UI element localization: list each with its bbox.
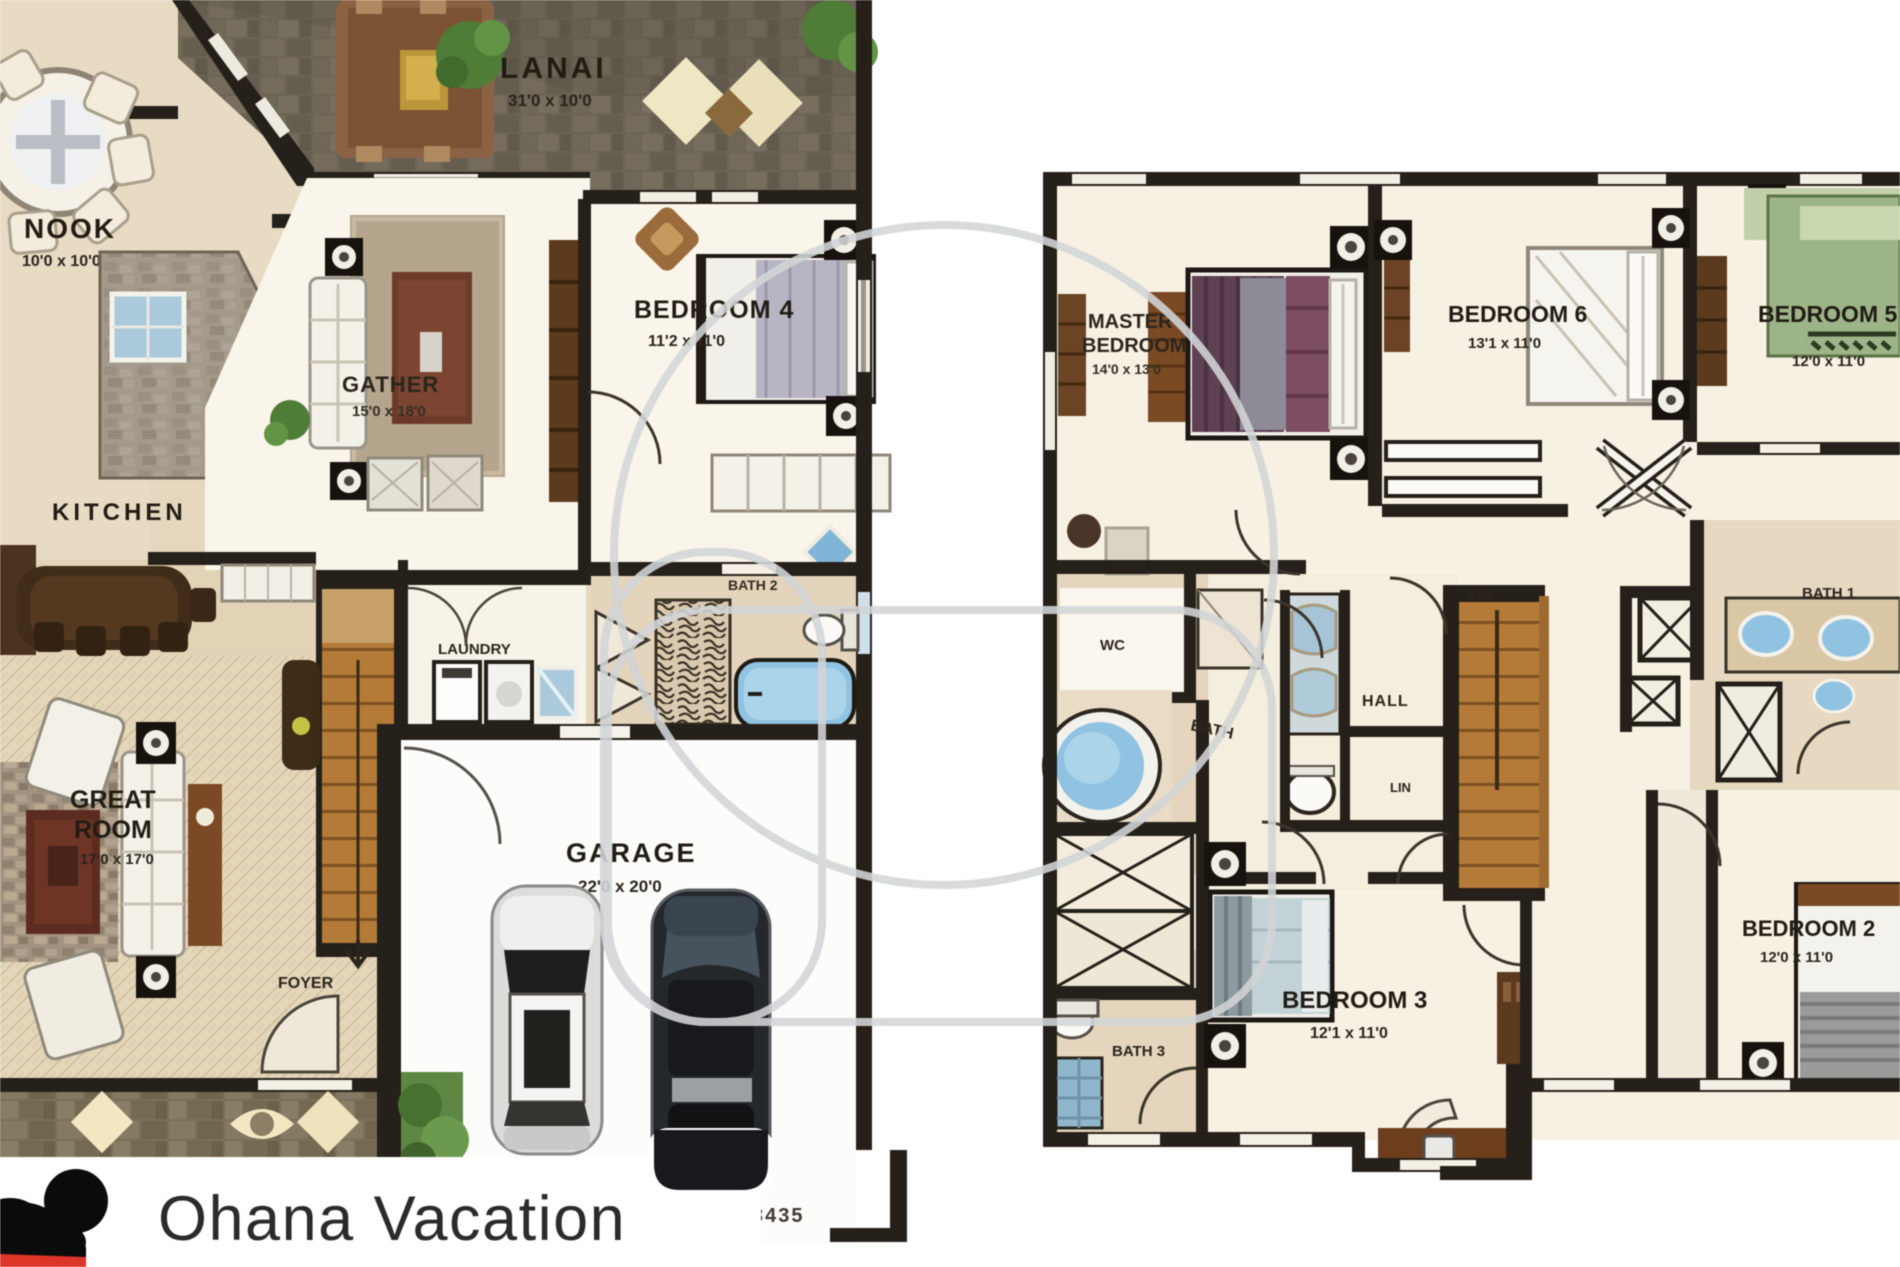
svg-text:BATH 2: BATH 2 <box>728 577 778 593</box>
svg-text:DN: DN <box>1470 587 1492 604</box>
svg-text:14'0 x 13'0: 14'0 x 13'0 <box>1092 361 1161 377</box>
svg-text:LIN: LIN <box>1390 780 1411 795</box>
svg-text:BATH 1: BATH 1 <box>1802 585 1855 602</box>
svg-text:BEDROOM 2: BEDROOM 2 <box>1742 916 1875 941</box>
svg-text:FOYER: FOYER <box>278 975 334 992</box>
svg-text:GARAGE: GARAGE <box>566 838 697 868</box>
svg-text:BEDROOM 5: BEDROOM 5 <box>1758 301 1898 327</box>
svg-text:12'0 x 11'0: 12'0 x 11'0 <box>1792 353 1865 370</box>
svg-text:KITCHEN: KITCHEN <box>52 499 187 526</box>
svg-text:NOOK: NOOK <box>24 213 116 244</box>
svg-text:Ohana Vacation: Ohana Vacation <box>158 1184 626 1254</box>
svg-text:BEDROOM: BEDROOM <box>1082 335 1186 357</box>
svg-text:10'0 x 10'0: 10'0 x 10'0 <box>22 253 101 270</box>
svg-text:WC: WC <box>1100 637 1125 654</box>
svg-text:GREAT: GREAT <box>70 786 156 814</box>
svg-text:MASTER: MASTER <box>1088 311 1173 333</box>
svg-text:LAUNDRY: LAUNDRY <box>438 641 511 658</box>
svg-text:13'1 x 11'0: 13'1 x 11'0 <box>1468 335 1541 352</box>
svg-text:BEDROOM 3: BEDROOM 3 <box>1282 987 1427 1014</box>
svg-text:ROOM: ROOM <box>74 816 152 844</box>
svg-text:17'0 x 17'0: 17'0 x 17'0 <box>80 851 154 868</box>
svg-text:BATH 3: BATH 3 <box>1112 1043 1165 1060</box>
svg-text:GATHER: GATHER <box>342 372 439 397</box>
svg-text:31'0 x 10'0: 31'0 x 10'0 <box>508 91 592 110</box>
svg-text:BEDROOM 6: BEDROOM 6 <box>1448 301 1587 327</box>
svg-text:12'0 x 11'0: 12'0 x 11'0 <box>1760 949 1833 966</box>
svg-text:LANAI: LANAI <box>500 52 607 85</box>
svg-text:12'1 x 11'0: 12'1 x 11'0 <box>1310 1025 1388 1042</box>
svg-text:HALL: HALL <box>1362 693 1409 710</box>
svg-text:15'0 x 18'0: 15'0 x 18'0 <box>352 403 426 420</box>
